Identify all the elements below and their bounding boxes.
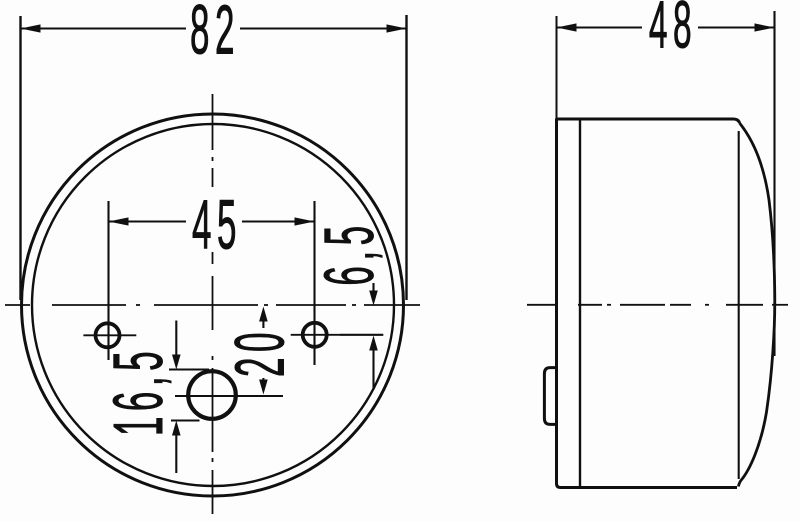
svg-text:20: 20 bbox=[220, 327, 298, 377]
svg-text:6,5: 6,5 bbox=[310, 220, 388, 285]
svg-text:16,5: 16,5 bbox=[99, 346, 177, 436]
svg-text:45: 45 bbox=[192, 185, 242, 263]
svg-text:82: 82 bbox=[190, 0, 240, 69]
svg-text:48: 48 bbox=[649, 0, 697, 63]
